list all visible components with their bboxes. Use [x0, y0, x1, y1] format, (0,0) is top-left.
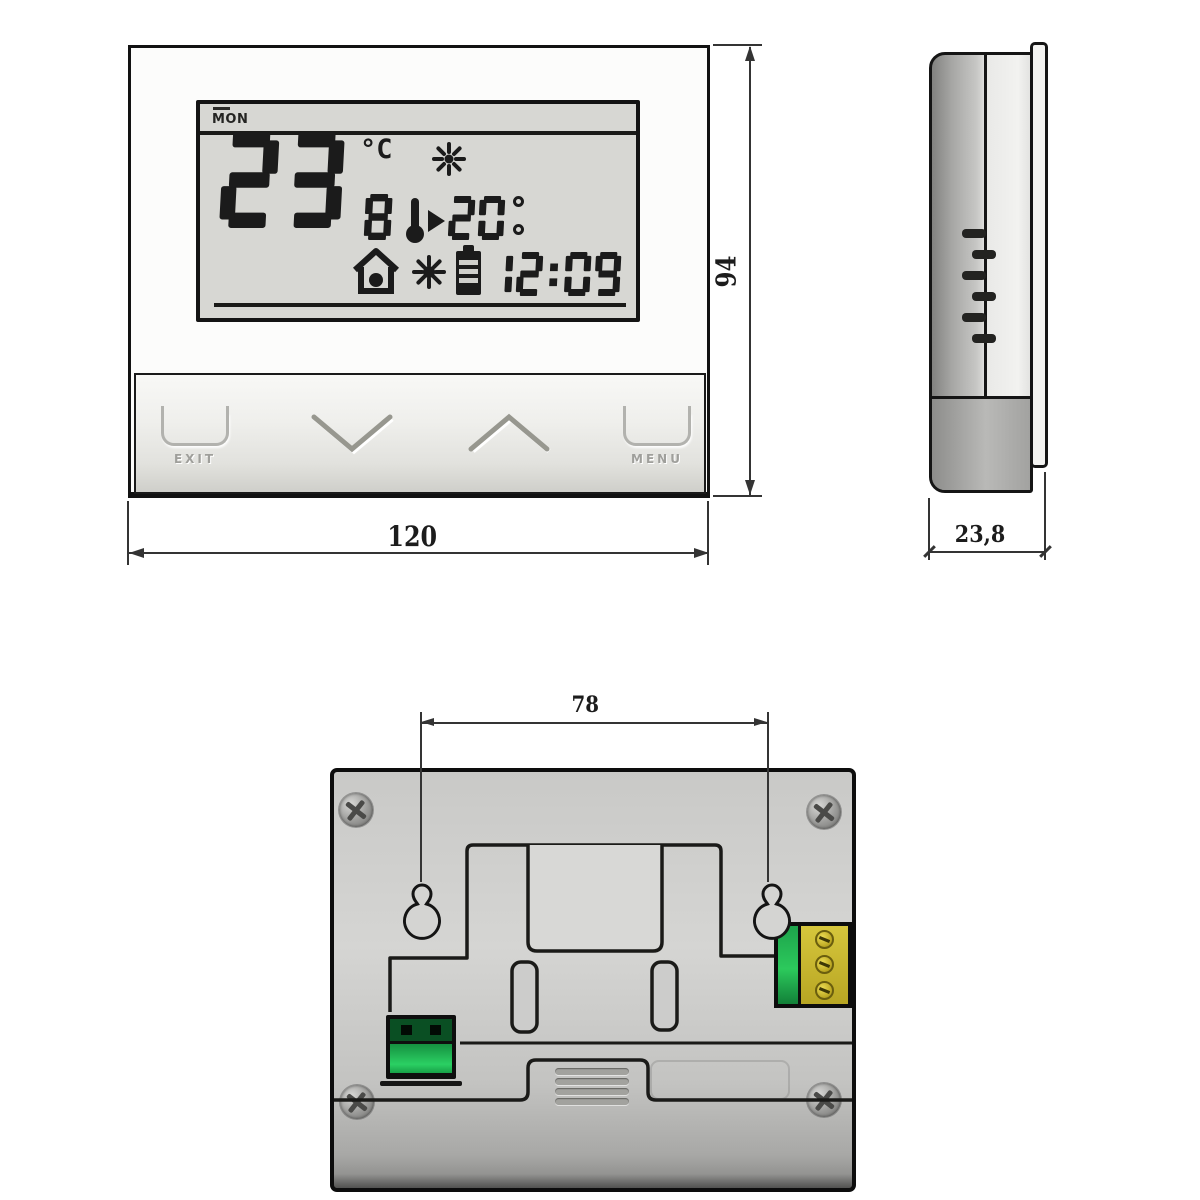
lcd-unit-label: °C [360, 134, 393, 165]
extension-line [767, 712, 769, 882]
lcd-set-temperature-digits [450, 196, 510, 240]
button-panel: EXIT MENU [134, 373, 706, 494]
back-view [330, 768, 856, 1192]
speaker-grille-bar [555, 1098, 629, 1105]
extension-line [713, 495, 762, 497]
degree-mark-icon [513, 224, 524, 235]
terminal-screw-icon [815, 955, 834, 974]
dimension-label-height: 94 [712, 252, 743, 291]
house-icon [350, 245, 402, 301]
lcd-period-digit [366, 194, 398, 240]
lcd-day-label: MON [212, 112, 248, 127]
button-outline-icon [161, 413, 229, 446]
speaker-grille-bar [555, 1088, 629, 1095]
lcd-indicator-bar [213, 107, 230, 110]
chevron-up-icon [463, 403, 555, 461]
chevron-down-icon [306, 403, 398, 461]
degree-mark-icon [513, 196, 524, 207]
arrowhead-icon [754, 718, 767, 726]
arrow-right-icon [428, 210, 445, 232]
thermostat-dimension-drawing: MON °C [0, 0, 1200, 1200]
vent-slots [962, 229, 996, 355]
side-view [929, 52, 1033, 493]
extension-line [420, 712, 422, 882]
lcd-bottom-line [214, 303, 626, 307]
molded-recess [650, 1060, 790, 1100]
dimension-label-width: 120 [387, 520, 437, 553]
arrowhead-icon [745, 480, 755, 495]
lcd-top-band: MON [200, 104, 636, 135]
connector-pin-holes [390, 1019, 452, 1041]
exit-button-label: EXIT [160, 452, 230, 466]
dimension-label-depth: 23,8 [955, 521, 1005, 548]
extension-line [1044, 472, 1046, 560]
lcd-display: MON °C [196, 100, 640, 322]
battery-icon [456, 251, 481, 295]
terminal-screws [801, 926, 848, 1004]
lcd-temperature-digits [224, 132, 355, 228]
exit-button: EXIT [160, 413, 230, 466]
front-view: MON °C [128, 45, 710, 498]
speaker-grille-bar [555, 1078, 629, 1085]
connector-body [390, 1044, 452, 1073]
dimension-line-height [749, 47, 751, 495]
dimension-label-hole-spacing: 78 [572, 692, 600, 718]
terminal-screw-icon [815, 930, 834, 949]
bottom-shadow [334, 1174, 852, 1188]
arrowhead-icon [745, 46, 755, 61]
sun-icon [412, 255, 446, 293]
thermometer-icon [404, 198, 426, 244]
arrowhead-icon [694, 548, 709, 558]
menu-button: MENU [622, 413, 692, 466]
connector-base [380, 1081, 462, 1086]
button-outline-icon [623, 413, 691, 446]
dimension-line-depth [929, 551, 1046, 553]
speaker-grille-bar [555, 1068, 629, 1075]
arrowhead-icon [129, 548, 144, 558]
menu-button-label: MENU [622, 452, 692, 466]
battery-cover-side [932, 399, 1030, 490]
terminal-screw-icon [815, 981, 834, 1000]
keyhole-mount [402, 878, 442, 946]
keyhole-mount [752, 878, 792, 946]
connector-socket [386, 1015, 456, 1079]
lcd-time-digits [488, 252, 626, 296]
sun-icon [432, 142, 466, 180]
arrowhead-icon [421, 718, 434, 726]
dimension-line-hole-spacing [421, 722, 767, 724]
